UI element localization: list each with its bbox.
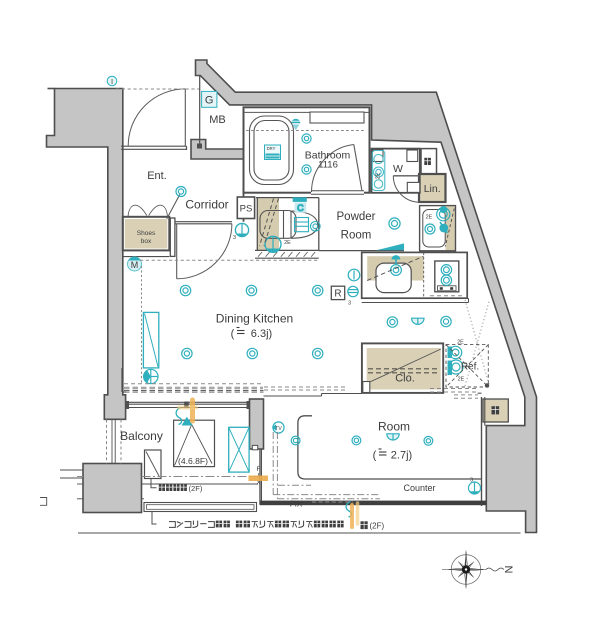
svg-text:Counter: Counter [403,483,435,493]
svg-text:(: ( [231,328,235,340]
svg-text:(: ( [373,450,377,462]
svg-text:FIX: FIX [290,500,303,509]
svg-text:Dining Kitchen: Dining Kitchen [216,312,293,326]
svg-text:N: N [502,566,514,574]
svg-text:(2F): (2F) [370,522,385,531]
svg-text:G: G [205,95,214,107]
svg-text:Lin.: Lin. [424,183,441,195]
svg-text:Ref.: Ref. [461,362,479,373]
svg-text:C: C [297,203,304,213]
svg-text:(2F): (2F) [189,484,203,493]
svg-text:2E: 2E [376,172,382,179]
svg-text:(4.6.8F): (4.6.8F) [178,456,208,466]
svg-text:Ent.: Ent. [147,170,167,182]
svg-text:2.7j): 2.7j) [391,450,412,462]
svg-text:Clo.: Clo. [395,373,415,385]
svg-text:W: W [393,163,403,175]
svg-text:MB: MB [209,114,226,126]
svg-text:Room: Room [378,420,410,434]
svg-text:Room: Room [341,230,372,242]
svg-text:2E: 2E [426,215,433,221]
svg-text:1116: 1116 [318,160,338,171]
svg-text:3: 3 [233,235,236,241]
svg-text:DRY: DRY [267,146,276,151]
svg-text:Balcony: Balcony [120,429,163,443]
svg-text:box: box [141,238,152,245]
svg-text:2E: 2E [284,240,291,246]
svg-text:3: 3 [470,478,473,484]
svg-text:PS: PS [240,204,253,215]
svg-text:M: M [131,260,139,270]
svg-text:Corridor: Corridor [185,198,228,212]
svg-text:I: I [111,77,113,86]
svg-text:TV: TV [275,426,282,432]
svg-text:2E: 2E [458,377,465,383]
svg-text:Powder: Powder [337,211,376,223]
svg-text:R: R [334,289,341,300]
svg-text:3: 3 [348,301,351,307]
svg-text:6.3j): 6.3j) [251,328,272,340]
svg-text:Shoes: Shoes [137,230,156,237]
